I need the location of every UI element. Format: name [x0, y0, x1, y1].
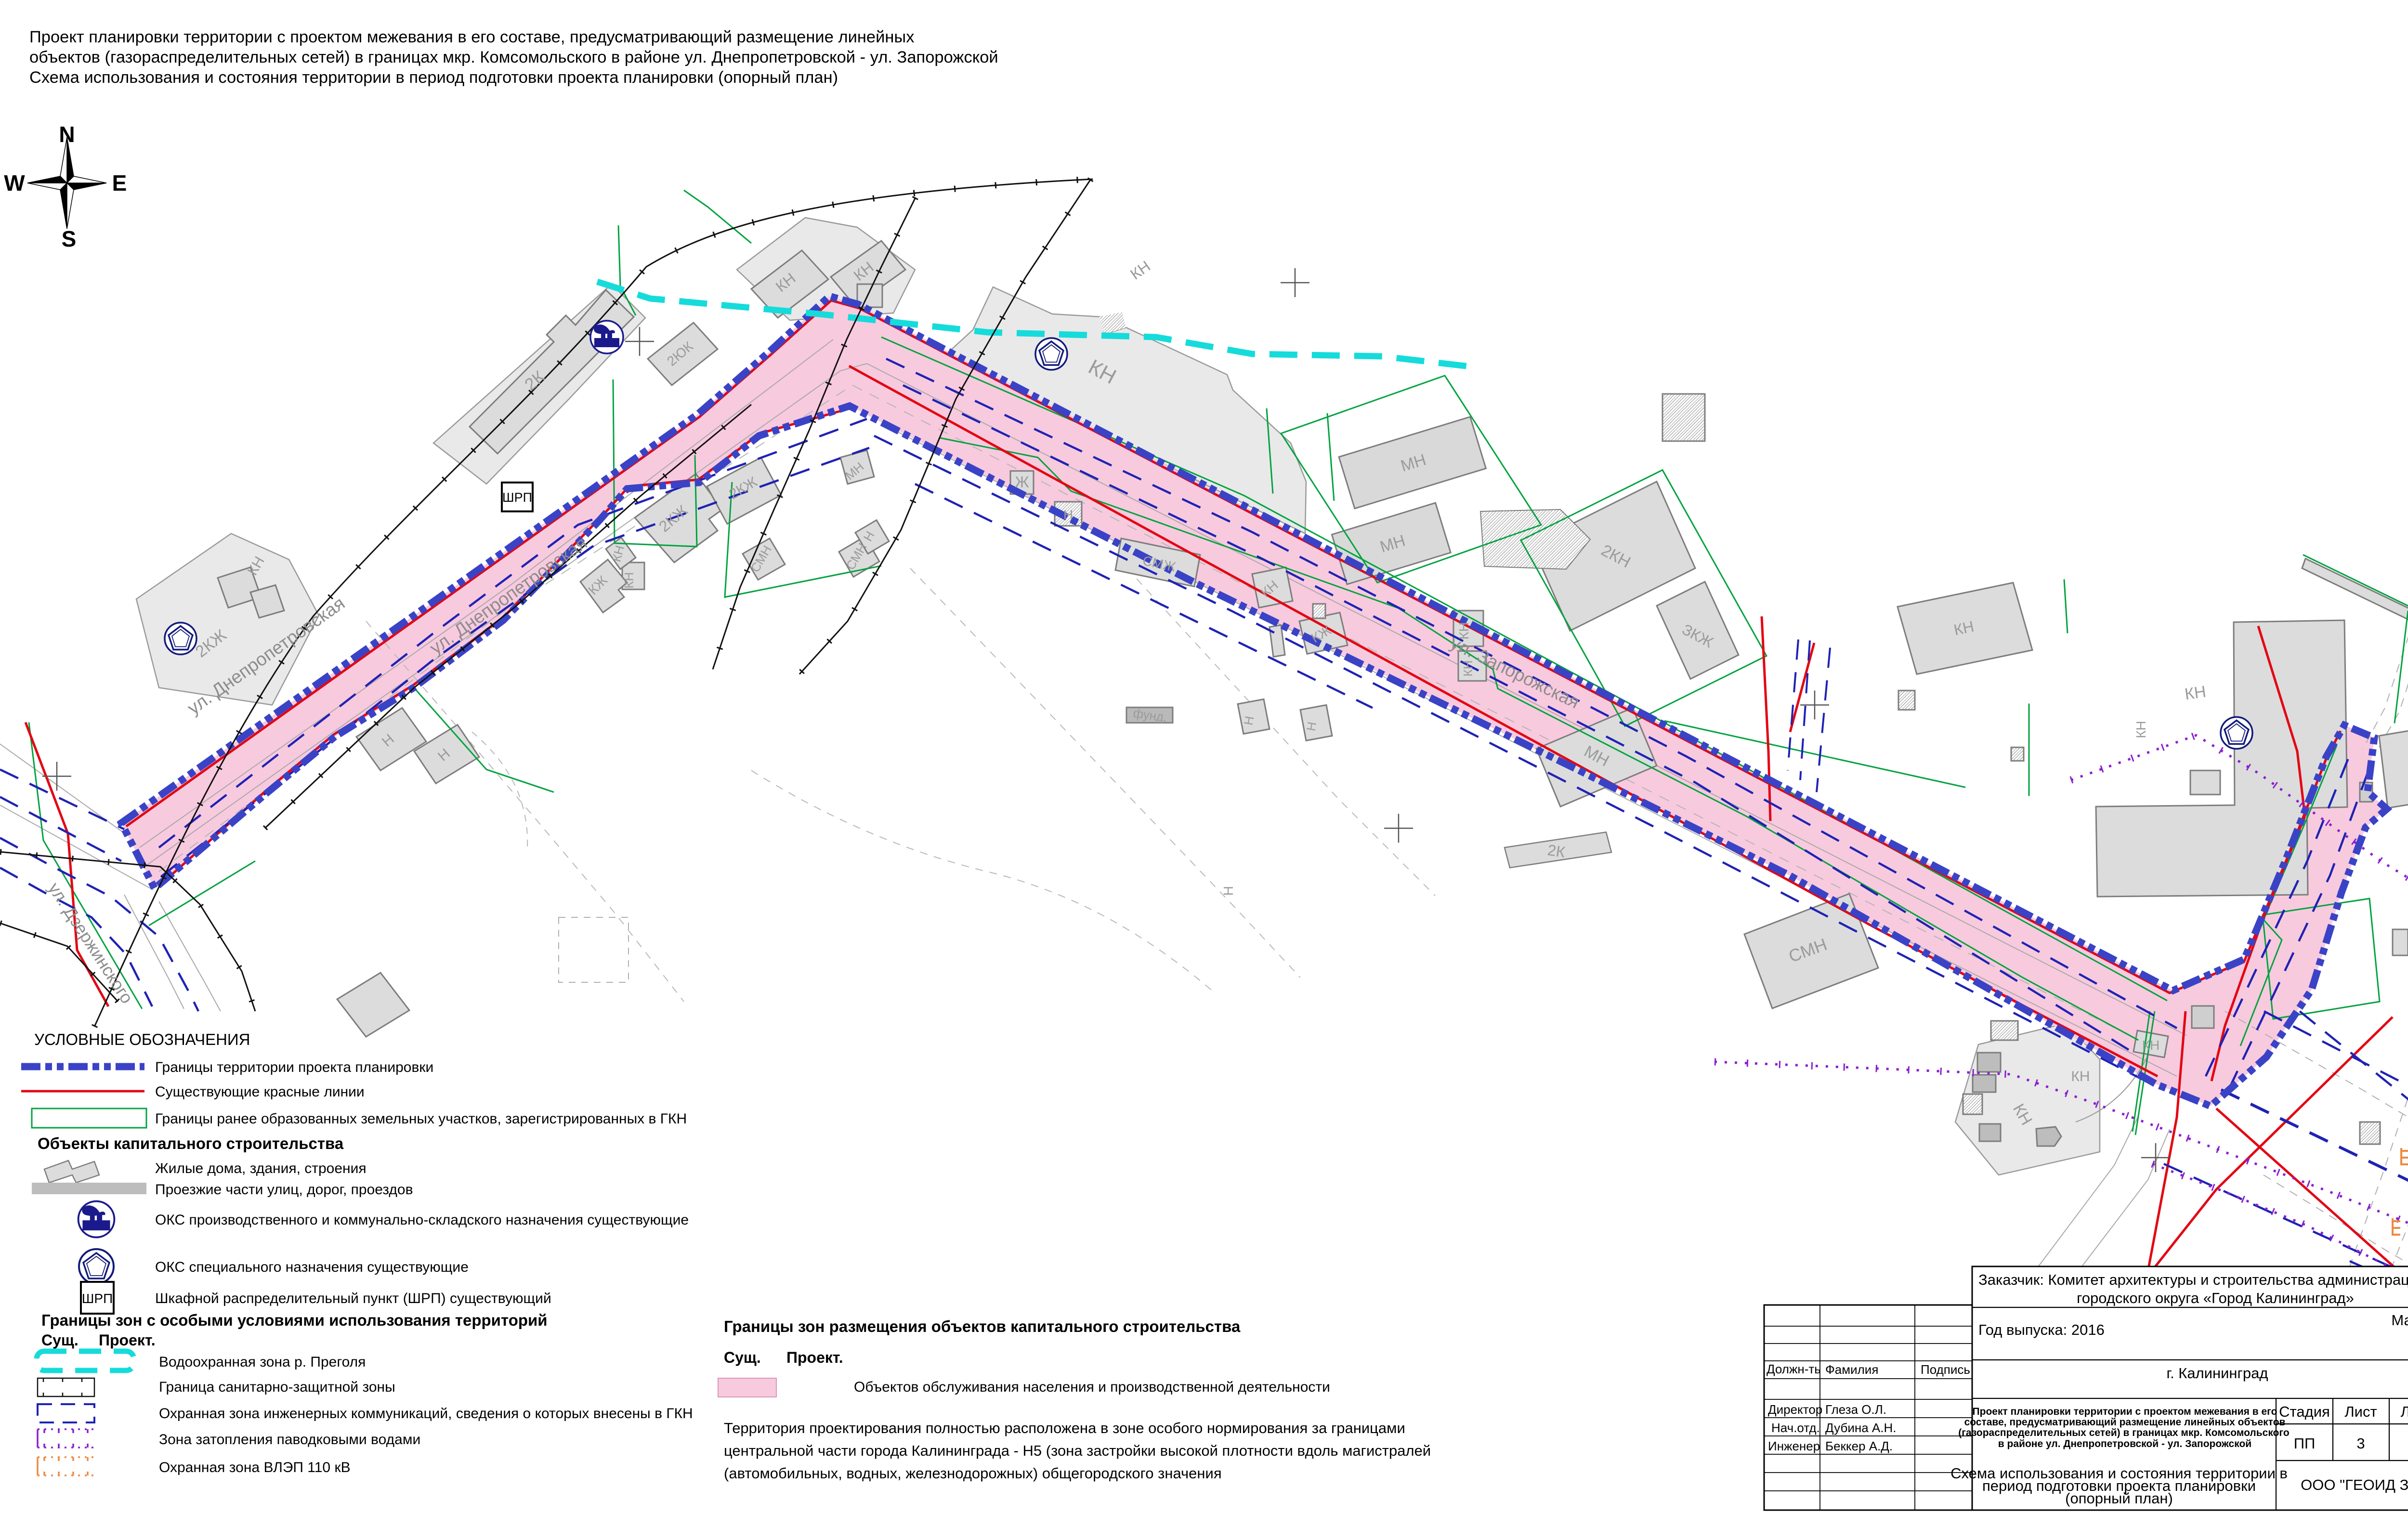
- svg-text:Объектов обслуживания населени: Объектов обслуживания населения и произв…: [854, 1379, 1330, 1395]
- svg-text:Сущ.: Сущ.: [41, 1331, 79, 1349]
- svg-text:КН: КН: [622, 572, 636, 588]
- svg-text:городского округа «Город Калин: городского округа «Город Калининград»: [2077, 1290, 2354, 1306]
- svg-text:ШРП: ШРП: [82, 1291, 113, 1306]
- svg-text:Шкафной распределительный пунк: Шкафной распределительный пункт (ШРП) су…: [155, 1291, 551, 1306]
- svg-text:Существующие красные линии: Существующие красные линии: [155, 1084, 365, 1100]
- svg-text:Границы зон размещения объекто: Границы зон размещения объектов капиталь…: [724, 1317, 1241, 1335]
- svg-text:Объекты капитального строитель: Объекты капитального строительства: [38, 1135, 344, 1152]
- svg-text:Граница санитарно-защитной зон: Граница санитарно-защитной зоны: [159, 1379, 395, 1395]
- svg-text:КН: КН: [2142, 1038, 2160, 1053]
- svg-text:центральной части города Калин: центральной части города Калининграда - …: [724, 1442, 1431, 1459]
- svg-text:Глеза О.Л.: Глеза О.Л.: [1825, 1402, 1886, 1417]
- svg-text:Проект планировки территории с: Проект планировки территории с проектом …: [1973, 1406, 2277, 1417]
- svg-text:ОКС специального назначения су: ОКС специального назначения существующие: [155, 1259, 469, 1275]
- svg-text:Зона затопления паводковыми во: Зона затопления паводковыми водами: [159, 1432, 420, 1448]
- svg-text:Должн-ть: Должн-ть: [1767, 1362, 1821, 1376]
- svg-text:E: E: [112, 170, 127, 196]
- svg-text:Границы ранее образованных зем: Границы ранее образованных земельных уча…: [155, 1111, 687, 1127]
- svg-text:Схема использования и состояни: Схема использования и состояния территор…: [29, 68, 838, 87]
- svg-text:Масштаб: Масштаб: [2391, 1312, 2408, 1329]
- svg-text:Проект.: Проект.: [99, 1331, 156, 1349]
- svg-text:Территория проектирования полн: Территория проектирования полностью расп…: [724, 1420, 1405, 1436]
- svg-text:Стадия: Стадия: [2279, 1403, 2330, 1420]
- svg-text:Заказчик: Комитет архитектуры: Заказчик: Комитет архитектуры и строител…: [1978, 1271, 2408, 1288]
- svg-text:Беккер А.Д.: Беккер А.Д.: [1825, 1439, 1893, 1453]
- svg-text:Н: Н: [1221, 886, 1236, 896]
- svg-text:Н: Н: [1063, 507, 1073, 522]
- svg-text:Жилые дома, здания, строения: Жилые дома, здания, строения: [155, 1161, 366, 1176]
- svg-text:г. Калининград: г. Калининград: [2167, 1365, 2268, 1382]
- svg-text:Охранная зона ВЛЭП 110 кВ: Охранная зона ВЛЭП 110 кВ: [159, 1460, 351, 1475]
- svg-text:Сущ.: Сущ.: [724, 1349, 761, 1366]
- svg-text:3: 3: [2356, 1435, 2365, 1452]
- svg-text:S: S: [62, 226, 77, 251]
- svg-text:N: N: [59, 122, 75, 147]
- svg-text:W: W: [4, 170, 25, 196]
- svg-text:Дубина А.Н.: Дубина А.Н.: [1825, 1421, 1897, 1435]
- svg-text:(опорный план): (опорный план): [2065, 1490, 2173, 1507]
- svg-text:ПП: ПП: [2294, 1435, 2316, 1452]
- svg-text:Подпись: Подпись: [1921, 1362, 1970, 1377]
- svg-text:Директор: Директор: [1768, 1402, 1822, 1417]
- svg-text:КН: КН: [1461, 660, 1475, 677]
- svg-text:Нач.отд.: Нач.отд.: [1771, 1421, 1820, 1435]
- svg-text:КН: КН: [1456, 622, 1471, 640]
- svg-text:Охранная зона инженерных комму: Охранная зона инженерных коммуникаций, с…: [159, 1406, 693, 1422]
- svg-text:Границы зон с особыми условиям: Границы зон с особыми условиями использо…: [41, 1311, 548, 1329]
- svg-text:Водоохранная зона р. Преголя: Водоохранная зона р. Преголя: [159, 1354, 366, 1370]
- svg-text:Проект планировки территории с: Проект планировки территории с проектом …: [29, 28, 914, 46]
- svg-text:ШРП: ШРП: [502, 490, 532, 505]
- svg-text:Год выпуска: 2016: Год выпуска: 2016: [1978, 1321, 2105, 1338]
- svg-text:УСЛОВНЫЕ ОБОЗНАЧЕНИЯ: УСЛОВНЫЕ ОБОЗНАЧЕНИЯ: [34, 1030, 250, 1048]
- svg-text:Проезжие части улиц, дорог, пр: Проезжие части улиц, дорог, проездов: [155, 1182, 413, 1198]
- svg-text:(автомобильных, водных, железн: (автомобильных, водных, железнодорожных)…: [724, 1465, 1222, 1482]
- svg-text:объектов (газораспределительны: объектов (газораспределительных сетей) в…: [29, 48, 998, 66]
- svg-text:составе, предусматривающий раз: составе, предусматривающий размещение ли…: [1964, 1417, 2286, 1428]
- svg-text:Листов: Листов: [2401, 1403, 2408, 1420]
- svg-text:Проект.: Проект.: [786, 1349, 843, 1366]
- svg-text:Инженер: Инженер: [1768, 1439, 1820, 1453]
- svg-text:Лист: Лист: [2344, 1403, 2377, 1420]
- svg-text:2К: 2К: [1546, 841, 1566, 861]
- svg-text:ООО "ГЕОИД ЗЕМ": ООО "ГЕОИД ЗЕМ": [2301, 1476, 2408, 1493]
- svg-text:Фамилия: Фамилия: [1825, 1362, 1878, 1377]
- svg-text:КН: КН: [2071, 1069, 2090, 1084]
- svg-text:Границы территории проекта пла: Границы территории проекта планировки: [155, 1059, 433, 1075]
- svg-text:в районе ул. Днепропетровской: в районе ул. Днепропетровской - ул. Запо…: [1998, 1438, 2251, 1449]
- svg-text:Ж: Ж: [1015, 473, 1029, 491]
- svg-text:КН: КН: [2133, 721, 2148, 739]
- svg-text:ОКС производственного и коммун: ОКС производственного и коммунально-скла…: [155, 1212, 689, 1228]
- svg-text:(газораспределительных сетей): (газораспределительных сетей) в границах…: [1958, 1427, 2289, 1438]
- svg-text:КН: КН: [2184, 682, 2207, 704]
